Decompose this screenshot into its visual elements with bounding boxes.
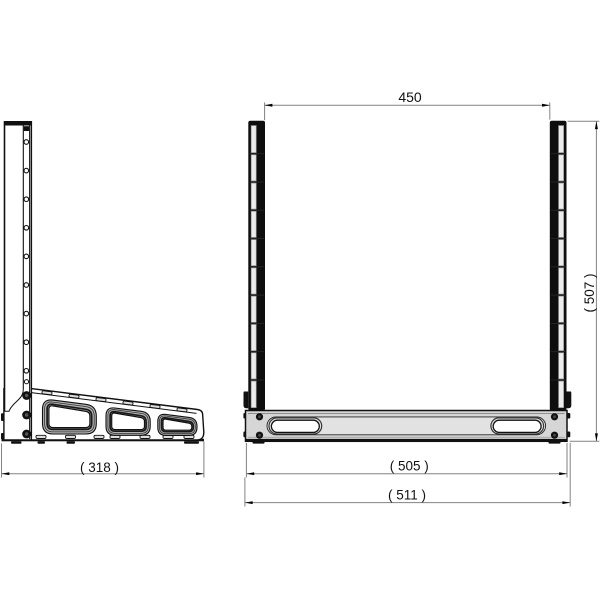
svg-text:( 507 ): ( 507 ) [582,273,597,312]
svg-text:( 511 ): ( 511 ) [388,488,426,503]
svg-text:( 318 ): ( 318 ) [80,460,119,475]
svg-text:( 505 ): ( 505 ) [390,459,429,474]
svg-text:450: 450 [398,89,422,105]
